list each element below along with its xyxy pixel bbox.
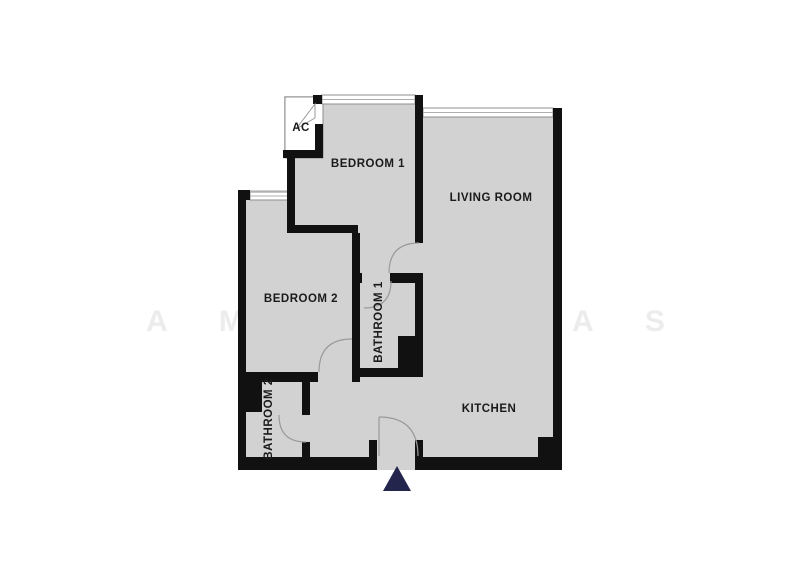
- wall-bathroom1-top-b: [390, 273, 423, 283]
- living-room-window: [423, 108, 553, 117]
- entrance-post-left: [369, 440, 377, 458]
- bathroom2-chase-block: [238, 374, 262, 412]
- wall-bedroom1-window-post: [313, 95, 322, 104]
- wall-ac-right: [315, 124, 323, 154]
- wall-bottom-right: [415, 457, 562, 470]
- living-room-label: LIVING ROOM: [450, 192, 533, 204]
- wall-bedroom1-bottom: [287, 225, 358, 233]
- bathroom2-label: BATHROOM 2: [263, 378, 275, 459]
- wall-bottom-left: [238, 457, 377, 470]
- wall-bedroom2-bottom-b: [352, 372, 360, 382]
- wall-bedroom2-right: [352, 233, 360, 382]
- kitchen-counter-block: [538, 437, 554, 458]
- wall-divider-upper: [415, 95, 423, 243]
- ac-label: AC: [292, 122, 310, 134]
- kitchen-label: KITCHEN: [462, 403, 517, 415]
- wall-bedroom2-top-corner: [238, 190, 250, 200]
- bathroom1-fixture-block: [398, 336, 423, 377]
- wall-bedroom1-left: [287, 150, 295, 233]
- wall-bathroom1-top-a: [352, 273, 362, 283]
- bedroom2-label: BEDROOM 2: [264, 293, 338, 305]
- floor-plan-canvas: A M E A S: [0, 0, 800, 565]
- wall-left-outer: [238, 190, 246, 470]
- wall-bathroom2-right-top: [302, 373, 310, 415]
- wall-bathroom2-right-bottom: [302, 442, 310, 458]
- watermark-right: A S: [572, 305, 687, 338]
- bedroom1-label: BEDROOM 1: [331, 158, 405, 170]
- bedroom2-window: [250, 192, 288, 200]
- bathroom1-label: BATHROOM 1: [373, 281, 385, 363]
- wall-bedroom2-top-right: [288, 192, 295, 200]
- wall-right-outer: [553, 108, 562, 470]
- bedroom1-window: [322, 95, 415, 104]
